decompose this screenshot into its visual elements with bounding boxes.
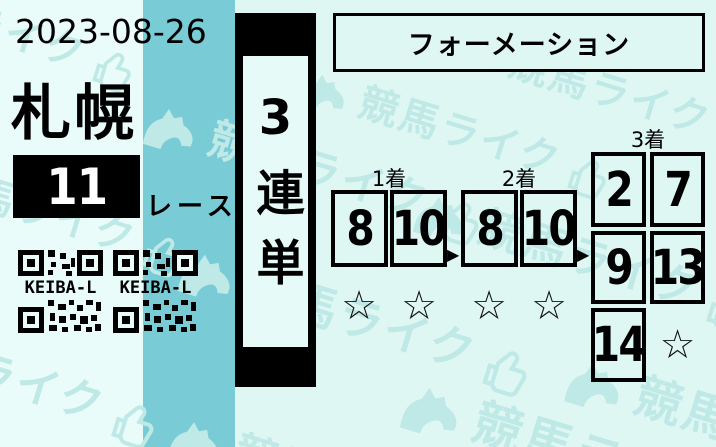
arrow-icon: ▶ [577, 247, 589, 263]
third-place-grid: 2 7 9 13 14 ☆ [591, 152, 705, 382]
qr-code-1: KEIBA-L [18, 250, 103, 333]
star-icon: ☆ [471, 286, 507, 326]
horse-number: 10 [392, 205, 445, 253]
star-icon: ☆ [341, 286, 377, 326]
third-place-number-box: 13 [650, 231, 705, 304]
qr-label: KEIBA-L [25, 278, 97, 298]
horse-number: 2 [605, 166, 632, 214]
bet-ticket: 競馬ライク 競馬ライク 競馬ライク 競馬ライク 競馬ライク 競馬ライク [0, 0, 716, 447]
arrow-icon: ▶ [447, 247, 459, 263]
qr-graphic: KEIBA-L [18, 250, 103, 333]
star-icon: ☆ [650, 308, 705, 382]
horse-number: 10 [522, 205, 575, 253]
horse-number: 8 [346, 205, 373, 253]
third-place-label: 3着 [631, 124, 665, 154]
star-icon: ☆ [401, 286, 437, 326]
race-date: 2023-08-26 [15, 12, 207, 51]
race-number-box: 11 [13, 155, 140, 218]
horse-number: 13 [651, 244, 704, 292]
horse-number: 7 [664, 166, 691, 214]
second-place-number-box: 10 [520, 190, 577, 267]
ticket-content: 2023-08-26 札幌 11 レース [0, 0, 716, 447]
second-place-label: 2着 [502, 163, 536, 193]
qr-code-2: KEIBA-L [113, 250, 198, 333]
third-place-number-box: 7 [650, 152, 705, 227]
race-label: レース [146, 186, 238, 223]
star-icon: ☆ [531, 286, 567, 326]
third-place-number-box: 9 [591, 231, 646, 304]
horse-number: 8 [476, 205, 503, 253]
venue-name: 札幌 [11, 84, 137, 144]
horse-number: 14 [592, 321, 645, 369]
third-place-number-box: 2 [591, 152, 646, 227]
bet-type-text: 3連単 [252, 56, 300, 347]
formation-method-box: フォーメーション [333, 13, 705, 72]
first-place-number-box: 10 [390, 190, 447, 267]
first-place-number-box: 8 [331, 190, 388, 267]
race-number: 11 [46, 158, 107, 216]
first-place-label: 1着 [372, 163, 406, 193]
second-place-number-box: 8 [461, 190, 518, 267]
horse-number: 9 [605, 244, 632, 292]
formation-method-label: フォーメーション [408, 23, 630, 62]
qr-label: KEIBA-L [120, 278, 192, 298]
third-place-number-box: 14 [591, 308, 646, 382]
bet-type-bar: 3連単 [235, 13, 316, 387]
bet-type-panel: 3連単 [243, 56, 308, 347]
qr-graphic: KEIBA-L [113, 250, 198, 333]
